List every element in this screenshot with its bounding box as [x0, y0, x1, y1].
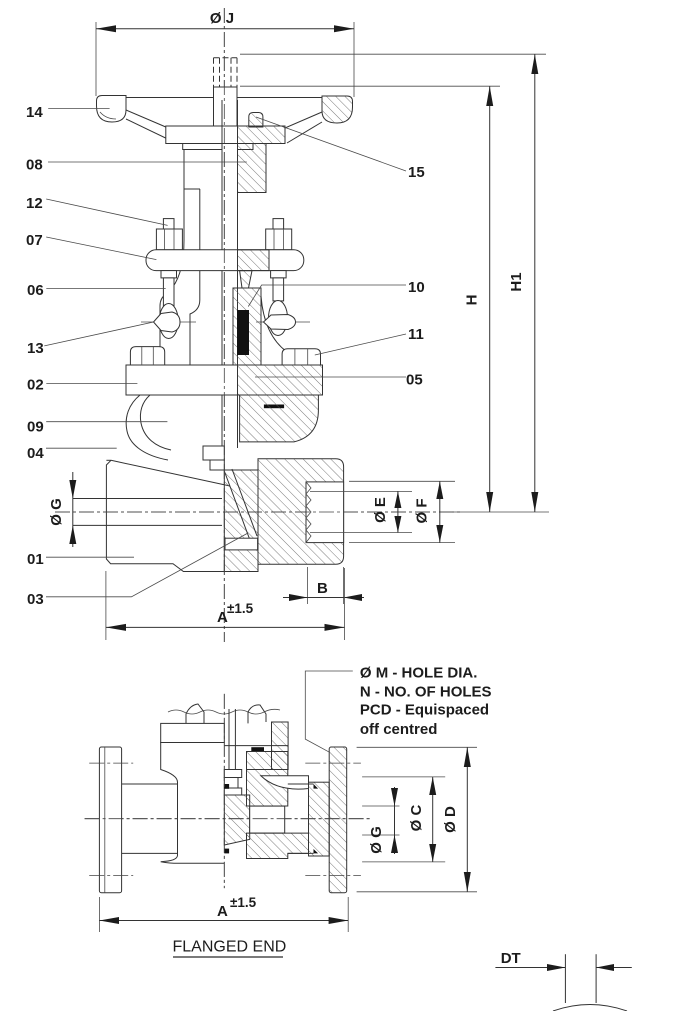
svg-text:PCD - Equispaced: PCD - Equispaced — [360, 702, 489, 719]
svg-text:04: 04 — [27, 445, 44, 462]
svg-text:12: 12 — [26, 195, 43, 212]
svg-text:Ø C: Ø C — [408, 805, 425, 832]
svg-text:Ø J: Ø J — [210, 10, 234, 27]
svg-text:Ø E: Ø E — [372, 497, 389, 523]
svg-text:01: 01 — [27, 551, 44, 568]
svg-text:off centred: off centred — [360, 721, 438, 738]
svg-text:H: H — [464, 295, 481, 306]
svg-text:11: 11 — [408, 326, 424, 343]
svg-text:Ø D: Ø D — [442, 806, 459, 833]
svg-text:05: 05 — [406, 372, 423, 389]
svg-text:02: 02 — [27, 377, 44, 394]
svg-text:Ø G: Ø G — [48, 498, 65, 526]
svg-text:Ø F: Ø F — [414, 499, 431, 524]
svg-text:±1.5: ±1.5 — [230, 895, 257, 910]
svg-text:N - NO. OF HOLES: N - NO. OF HOLES — [360, 684, 492, 701]
svg-text:13: 13 — [27, 340, 44, 357]
svg-text:A: A — [217, 903, 228, 920]
svg-text:03: 03 — [27, 591, 44, 608]
svg-text:B: B — [317, 580, 328, 597]
svg-text:08: 08 — [26, 157, 43, 174]
svg-text:DT: DT — [501, 950, 521, 967]
svg-text:±1.5: ±1.5 — [227, 601, 254, 616]
svg-text:Ø G: Ø G — [368, 826, 385, 854]
svg-text:09: 09 — [27, 419, 44, 436]
svg-text:14: 14 — [26, 104, 43, 121]
svg-text:06: 06 — [27, 282, 44, 299]
svg-text:15: 15 — [408, 164, 425, 181]
svg-text:07: 07 — [26, 232, 43, 249]
svg-text:10: 10 — [408, 279, 425, 296]
svg-text:H1: H1 — [508, 272, 525, 291]
svg-text:FLANGED END: FLANGED END — [173, 939, 287, 956]
svg-text:Ø M - HOLE DIA.: Ø M - HOLE DIA. — [360, 664, 478, 681]
